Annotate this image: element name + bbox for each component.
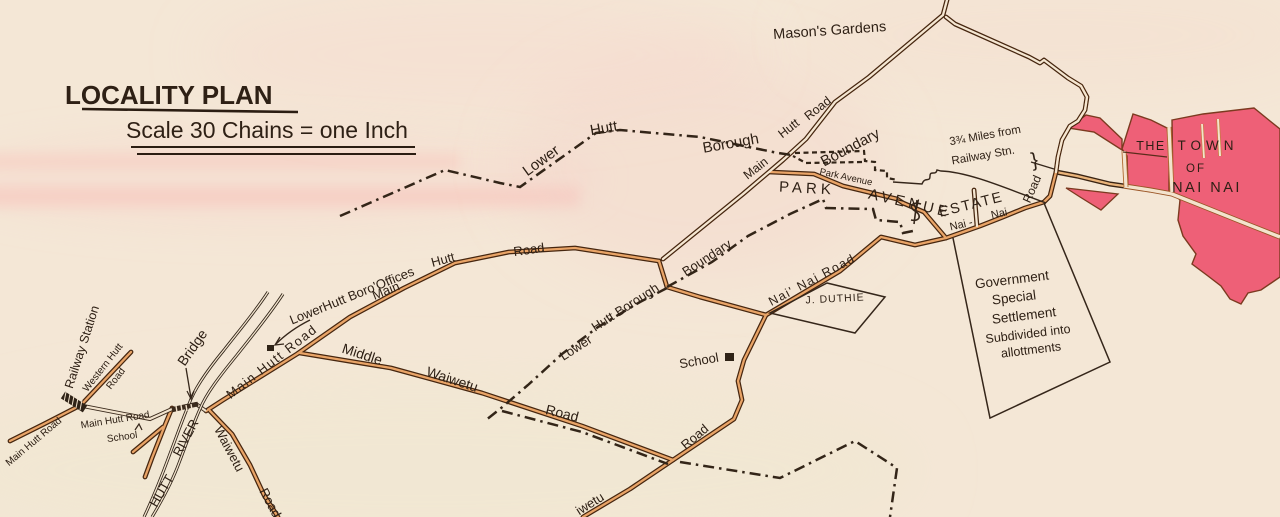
svg-text:TOWN: TOWN <box>1178 138 1239 153</box>
svg-text:NAI NAI: NAI NAI <box>1172 180 1242 196</box>
svg-text:OF: OF <box>1186 163 1206 175</box>
svg-text:Scale 30 Chains = one Inch: Scale 30 Chains = one Inch <box>126 117 408 143</box>
svg-text:PARK: PARK <box>779 179 836 199</box>
svg-text:THE: THE <box>1136 139 1166 153</box>
svg-text:LOCALITY PLAN: LOCALITY PLAN <box>65 80 273 110</box>
